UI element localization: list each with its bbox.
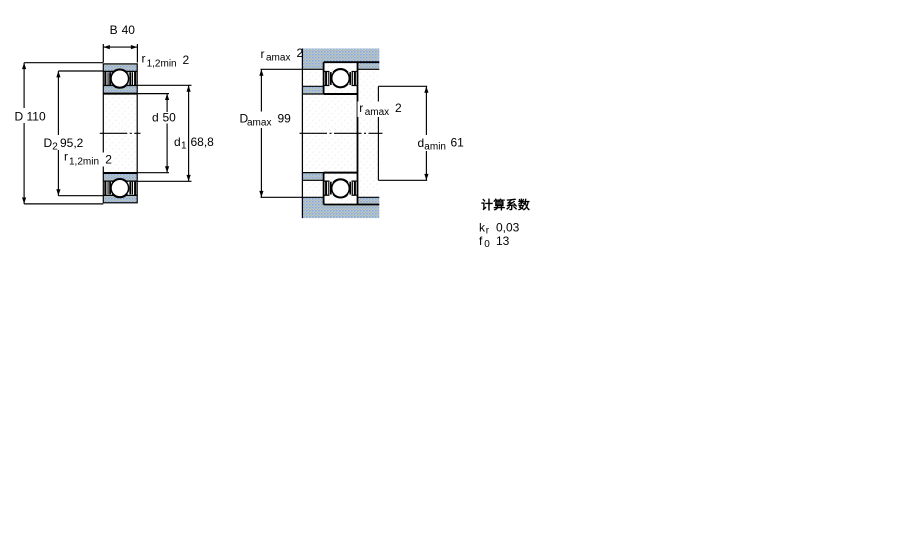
svg-text:d: d: [174, 135, 181, 149]
svg-text:amin: amin: [424, 141, 446, 152]
svg-text:计算系数: 计算系数: [481, 197, 531, 212]
svg-text:40: 40: [122, 23, 136, 37]
svg-text:d: d: [418, 136, 425, 150]
svg-text:D: D: [15, 110, 24, 124]
svg-text:110: 110: [27, 110, 46, 124]
svg-text:13: 13: [496, 234, 510, 248]
svg-text:r: r: [261, 47, 265, 61]
svg-text:2: 2: [297, 46, 304, 60]
svg-text:r: r: [142, 52, 146, 66]
svg-text:2: 2: [52, 142, 58, 153]
svg-text:50: 50: [163, 111, 177, 125]
svg-text:1,2min: 1,2min: [69, 156, 99, 167]
svg-text:95,2: 95,2: [60, 136, 84, 150]
svg-text:D: D: [44, 136, 53, 150]
svg-text:amax: amax: [266, 52, 290, 63]
svg-text:r: r: [64, 150, 68, 164]
svg-text:amax: amax: [365, 107, 389, 118]
svg-text:B: B: [110, 23, 118, 37]
svg-text:61: 61: [451, 136, 465, 150]
svg-text:2: 2: [395, 101, 402, 115]
svg-text:0: 0: [484, 239, 490, 250]
svg-text:0,03: 0,03: [496, 220, 520, 234]
svg-text:1,2min: 1,2min: [147, 58, 177, 69]
svg-text:d: d: [152, 111, 159, 125]
svg-text:2: 2: [105, 153, 112, 167]
svg-text:68,8: 68,8: [191, 135, 215, 149]
svg-text:r: r: [359, 101, 363, 115]
svg-text:99: 99: [278, 111, 292, 125]
svg-text:amax: amax: [247, 117, 271, 128]
svg-text:1: 1: [181, 140, 187, 151]
svg-text:2: 2: [183, 53, 190, 67]
